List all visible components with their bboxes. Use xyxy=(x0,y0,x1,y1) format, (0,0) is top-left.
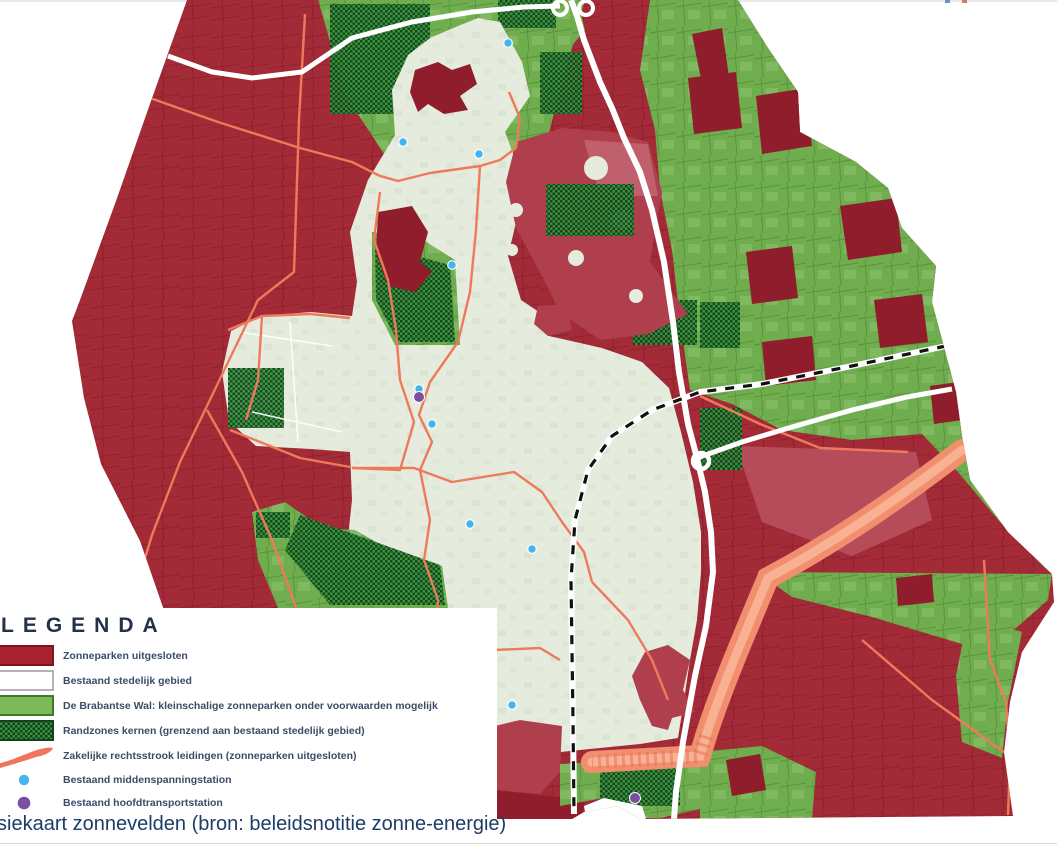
legend-item-label: Bestaand stedelijk gebied xyxy=(63,675,192,687)
red-area-swatch xyxy=(0,645,54,666)
legend-item-label: Bestaand hoofdtransportstation xyxy=(63,797,223,809)
legend-item-zonneparken-uitgesloten: Zonneparken uitgesloten xyxy=(0,643,497,668)
main-transport-station-dot xyxy=(414,392,425,403)
map-legend: LEGENDA Zonneparken uitgesloten Bestaand… xyxy=(0,608,497,821)
bottom-divider xyxy=(0,843,1057,844)
legend-item-hoofdtransportstation: Bestaand hoofdtransportstation xyxy=(0,791,497,814)
legend-item-label: Zonneparken uitgesloten xyxy=(63,650,188,662)
edge-artifact-mark xyxy=(962,0,967,3)
edge-artifact-mark xyxy=(945,0,950,3)
legend-item-zakelijke-rechtsstrook: Zakelijke rechtsstrook leidingen (zonnep… xyxy=(0,743,497,768)
legend-item-label: De Brabantse Wal: kleinschalige zonnepar… xyxy=(63,700,438,712)
medium-voltage-station-dot xyxy=(466,520,475,529)
map-caption: siekaart zonnevelden (bron: beleidsnotit… xyxy=(0,813,506,836)
legend-item-label: Zakelijke rechtsstrook leidingen (zonnep… xyxy=(63,750,356,762)
legend-item-bestaand-stedelijk-gebied: Bestaand stedelijk gebied xyxy=(0,668,497,693)
blue-dot-swatch xyxy=(0,772,54,788)
legend-title: LEGENDA xyxy=(1,614,497,638)
medium-voltage-station-dot xyxy=(504,39,513,48)
legend-item-randzones-kernen: Randzones kernen (grenzend aan bestaand … xyxy=(0,718,497,743)
medium-voltage-station-dot xyxy=(399,138,408,147)
legend-item-brabantse-wal: De Brabantse Wal: kleinschalige zonnepar… xyxy=(0,693,497,718)
green-area-swatch xyxy=(0,695,54,716)
medium-voltage-station-dot xyxy=(428,420,437,429)
purple-dot-swatch xyxy=(0,795,54,811)
medium-voltage-station-dot xyxy=(475,150,484,159)
pipeline-stroke-swatch xyxy=(0,743,54,769)
legend-item-label: Bestaand middenspanningstation xyxy=(63,774,232,786)
map-page: LEGENDA Zonneparken uitgesloten Bestaand… xyxy=(0,0,1057,846)
medium-voltage-station-dot xyxy=(448,261,457,270)
legend-item-label: Randzones kernen (grenzend aan bestaand … xyxy=(63,725,365,737)
legend-item-middenspanningstation: Bestaand middenspanningstation xyxy=(0,768,497,791)
medium-voltage-station-dot xyxy=(508,701,517,710)
main-transport-station-dot xyxy=(630,793,641,804)
medium-voltage-station-dot xyxy=(528,545,537,554)
hatched-area-swatch xyxy=(0,720,54,741)
white-area-swatch xyxy=(0,670,54,691)
